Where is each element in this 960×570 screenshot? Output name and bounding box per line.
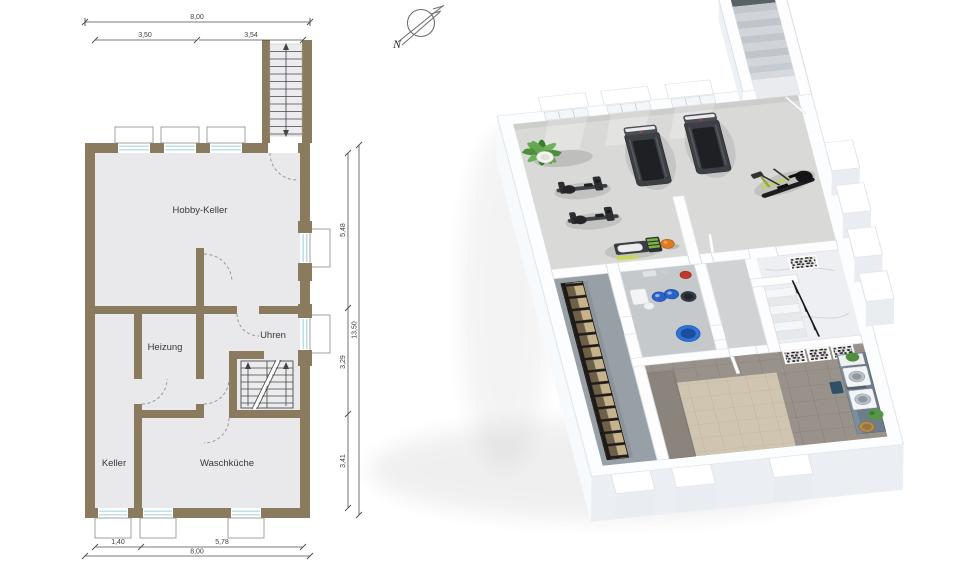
dim-right-lower: 3,41: [340, 454, 347, 468]
compass-needle-icon: [398, 5, 444, 45]
washing-machine-2: [849, 389, 877, 410]
north-label: N: [392, 37, 402, 51]
room-label-keller: Keller: [102, 458, 126, 469]
washing-machine-1: [843, 366, 871, 387]
dim-bottom-middle: 5,78: [215, 539, 229, 546]
dim-right-middle: 3,29: [340, 355, 347, 369]
render-3d: [370, 0, 943, 522]
dim-bottom-total: 8,00: [190, 549, 204, 556]
dim-right-overall: 13,50: [352, 321, 359, 339]
interior-staircase-2d: [241, 360, 293, 409]
dim-top-left: 3,50: [138, 32, 152, 39]
room-label-hobby-keller: Hobby-Keller: [173, 205, 228, 216]
laundry-floor-beige: [677, 372, 796, 456]
room-label-waschkueche: Waschküche: [200, 458, 254, 469]
basement-floorplan-scene: Hobby-Keller Heizung Uhren Keller Waschk…: [0, 0, 960, 570]
dim-right-upper: 5,48: [340, 223, 347, 237]
dim-top-right: 3,54: [244, 32, 258, 39]
dim-bottom-left: 1,40: [111, 539, 125, 546]
room-label-heizung: Heizung: [148, 342, 183, 353]
gym-door-gap: [268, 143, 298, 153]
north-windows: [115, 127, 245, 153]
floor-plan-2d: Hobby-Keller Heizung Uhren Keller Waschk…: [82, 14, 362, 559]
dim-top-total: 8,00: [190, 14, 204, 21]
exterior-staircase-2d: [262, 40, 312, 143]
room-label-uhren: Uhren: [260, 330, 286, 341]
compass: N: [392, 5, 444, 51]
